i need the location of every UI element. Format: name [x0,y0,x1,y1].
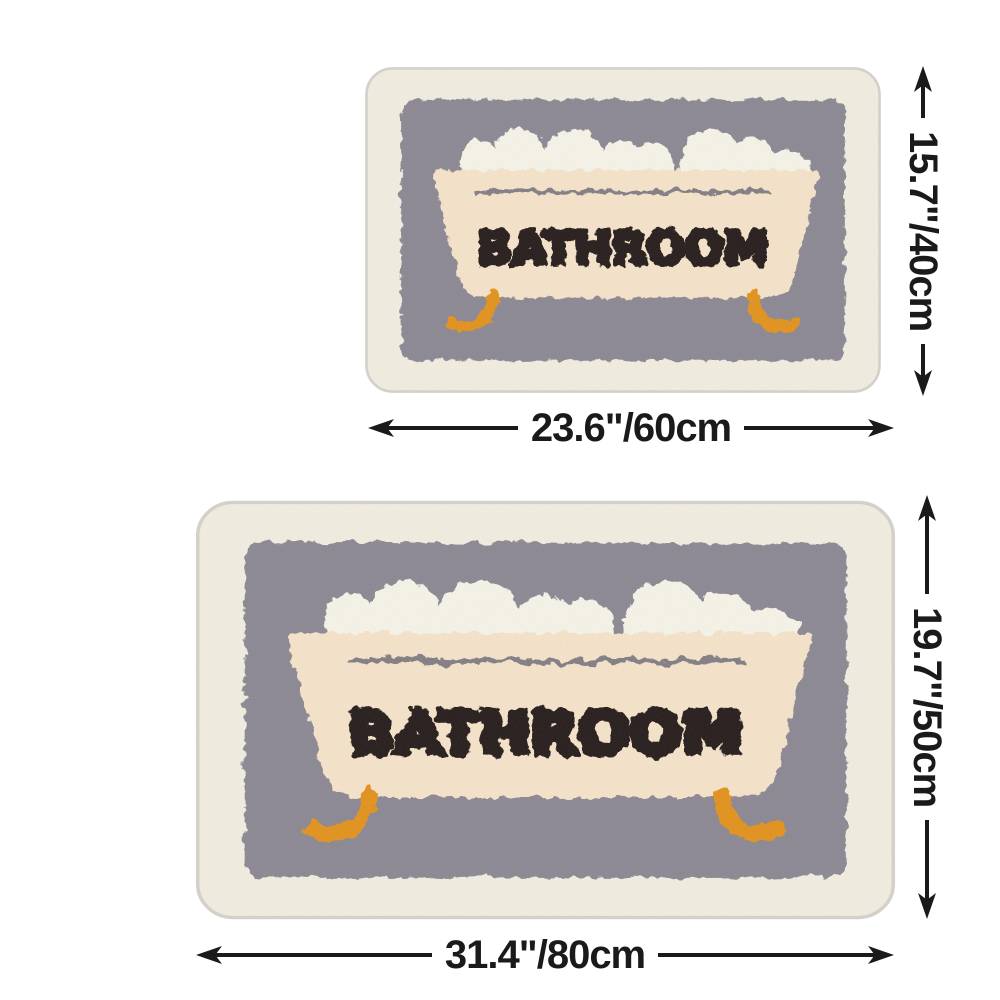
texture-overlay [366,68,879,391]
dimension-line [215,953,432,957]
dimension-line [744,426,875,430]
dimension-line [387,426,518,430]
dimension-line [921,85,925,118]
height-label-large: 19.7"/50cm [907,607,947,807]
texture-overlay [198,502,894,917]
dimension-line [658,953,875,957]
dimension-line [925,514,929,594]
height-dimension-small: 15.7"/40cm [901,66,945,396]
width-dimension-small: 23.6"/60cm [368,407,894,449]
small-bath-mat: BATHROOM [363,65,883,395]
dimension-line [925,820,929,900]
width-label-large: 31.4"/80cm [445,935,645,975]
large-bath-mat: BATHROOM [193,498,898,922]
product-size-diagram: BATHROOM 23.6"/60cm 15.7"/40cm [0,0,1000,1000]
dimension-line [921,344,925,377]
height-label-small: 15.7"/40cm [903,131,943,331]
width-label-small: 23.6"/60cm [531,408,731,448]
width-dimension-large: 31.4"/80cm [196,934,894,976]
height-dimension-large: 19.7"/50cm [905,495,949,919]
